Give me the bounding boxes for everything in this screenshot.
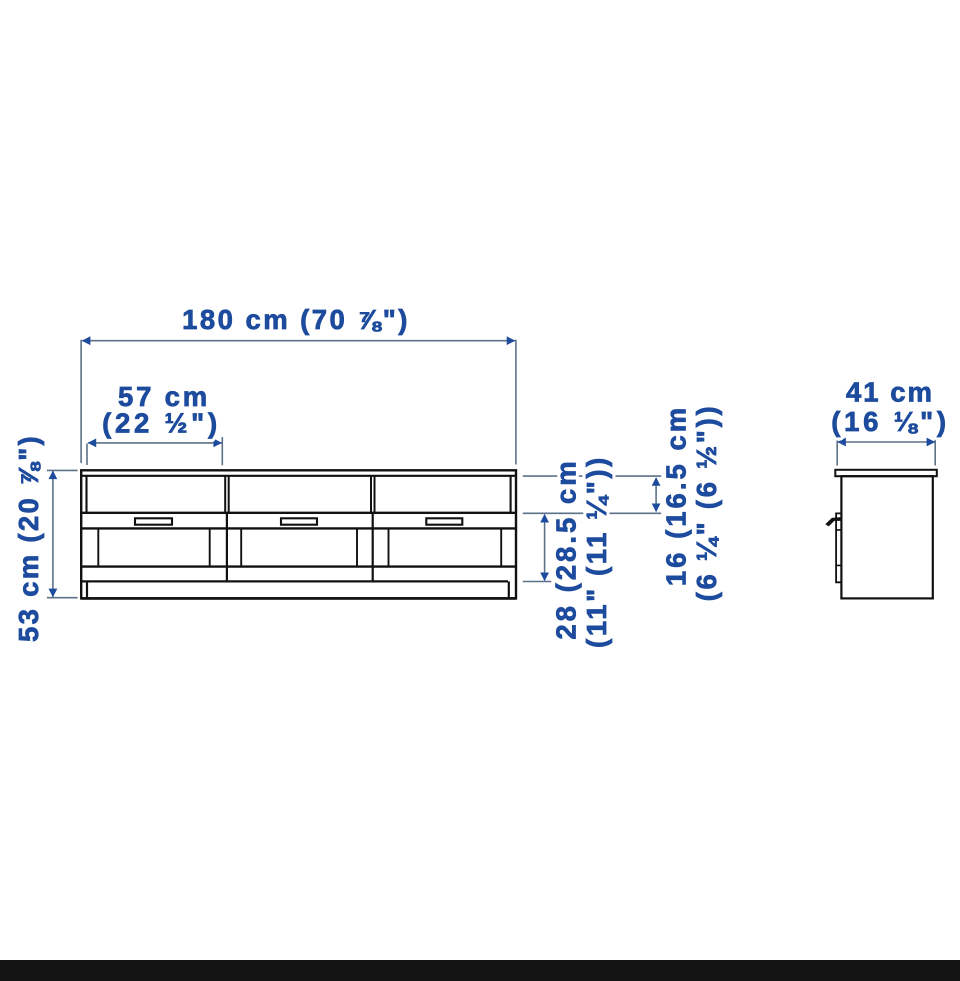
- svg-text:28 (28.5 cm: 28 (28.5 cm: [551, 458, 582, 639]
- svg-text:(16 ⅛"): (16 ⅛"): [831, 406, 949, 437]
- svg-text:(6 ¼" (6 ½")): (6 ¼" (6 ½")): [691, 404, 722, 602]
- svg-text:180 cm (70 ⅞"): 180 cm (70 ⅞"): [182, 304, 410, 335]
- svg-text:(11" (11 ¼")): (11" (11 ¼")): [581, 455, 612, 648]
- svg-text:41 cm: 41 cm: [846, 377, 934, 408]
- svg-text:16 (16.5 cm: 16 (16.5 cm: [661, 405, 692, 586]
- svg-text:53 cm (20 ⅞"): 53 cm (20 ⅞"): [13, 434, 44, 642]
- svg-text:(22 ½"): (22 ½"): [102, 408, 221, 439]
